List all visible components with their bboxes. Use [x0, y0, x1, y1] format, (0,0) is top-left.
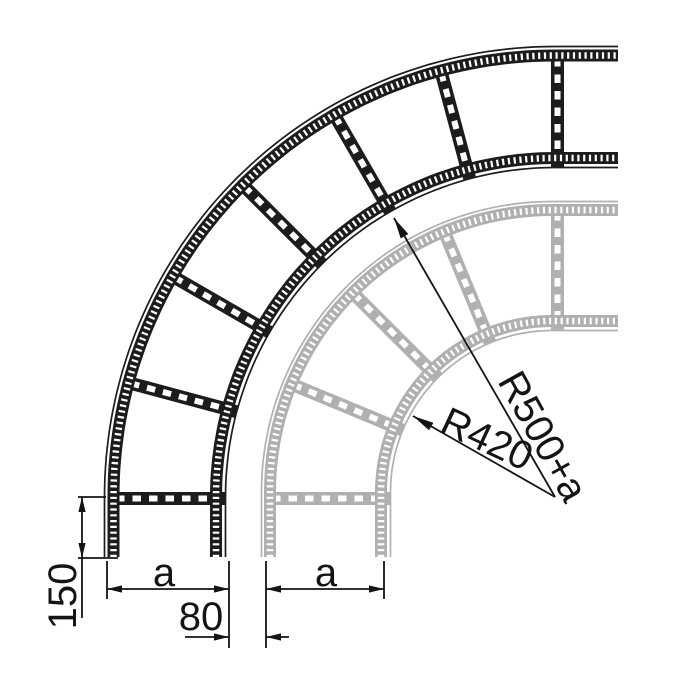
dim-a-front-label: a — [153, 551, 176, 595]
arrowhead — [266, 633, 281, 640]
arrowhead — [78, 497, 85, 512]
arrowhead — [107, 585, 122, 592]
drawing-canvas: 150 a 80 a R420 R500+a — [0, 0, 691, 683]
arrowhead — [214, 585, 229, 592]
arrowhead — [413, 416, 433, 430]
dim-150-label: 150 — [41, 563, 85, 630]
dim-a-back-label: a — [315, 551, 338, 595]
dim-80-label: 80 — [179, 595, 224, 639]
arrowhead — [369, 585, 384, 592]
arrowhead — [266, 585, 281, 592]
arrowhead — [394, 218, 408, 238]
arrowhead — [78, 543, 85, 558]
cable-ladder-bend-drawing: 150 a 80 a R420 R500+a — [0, 0, 691, 683]
